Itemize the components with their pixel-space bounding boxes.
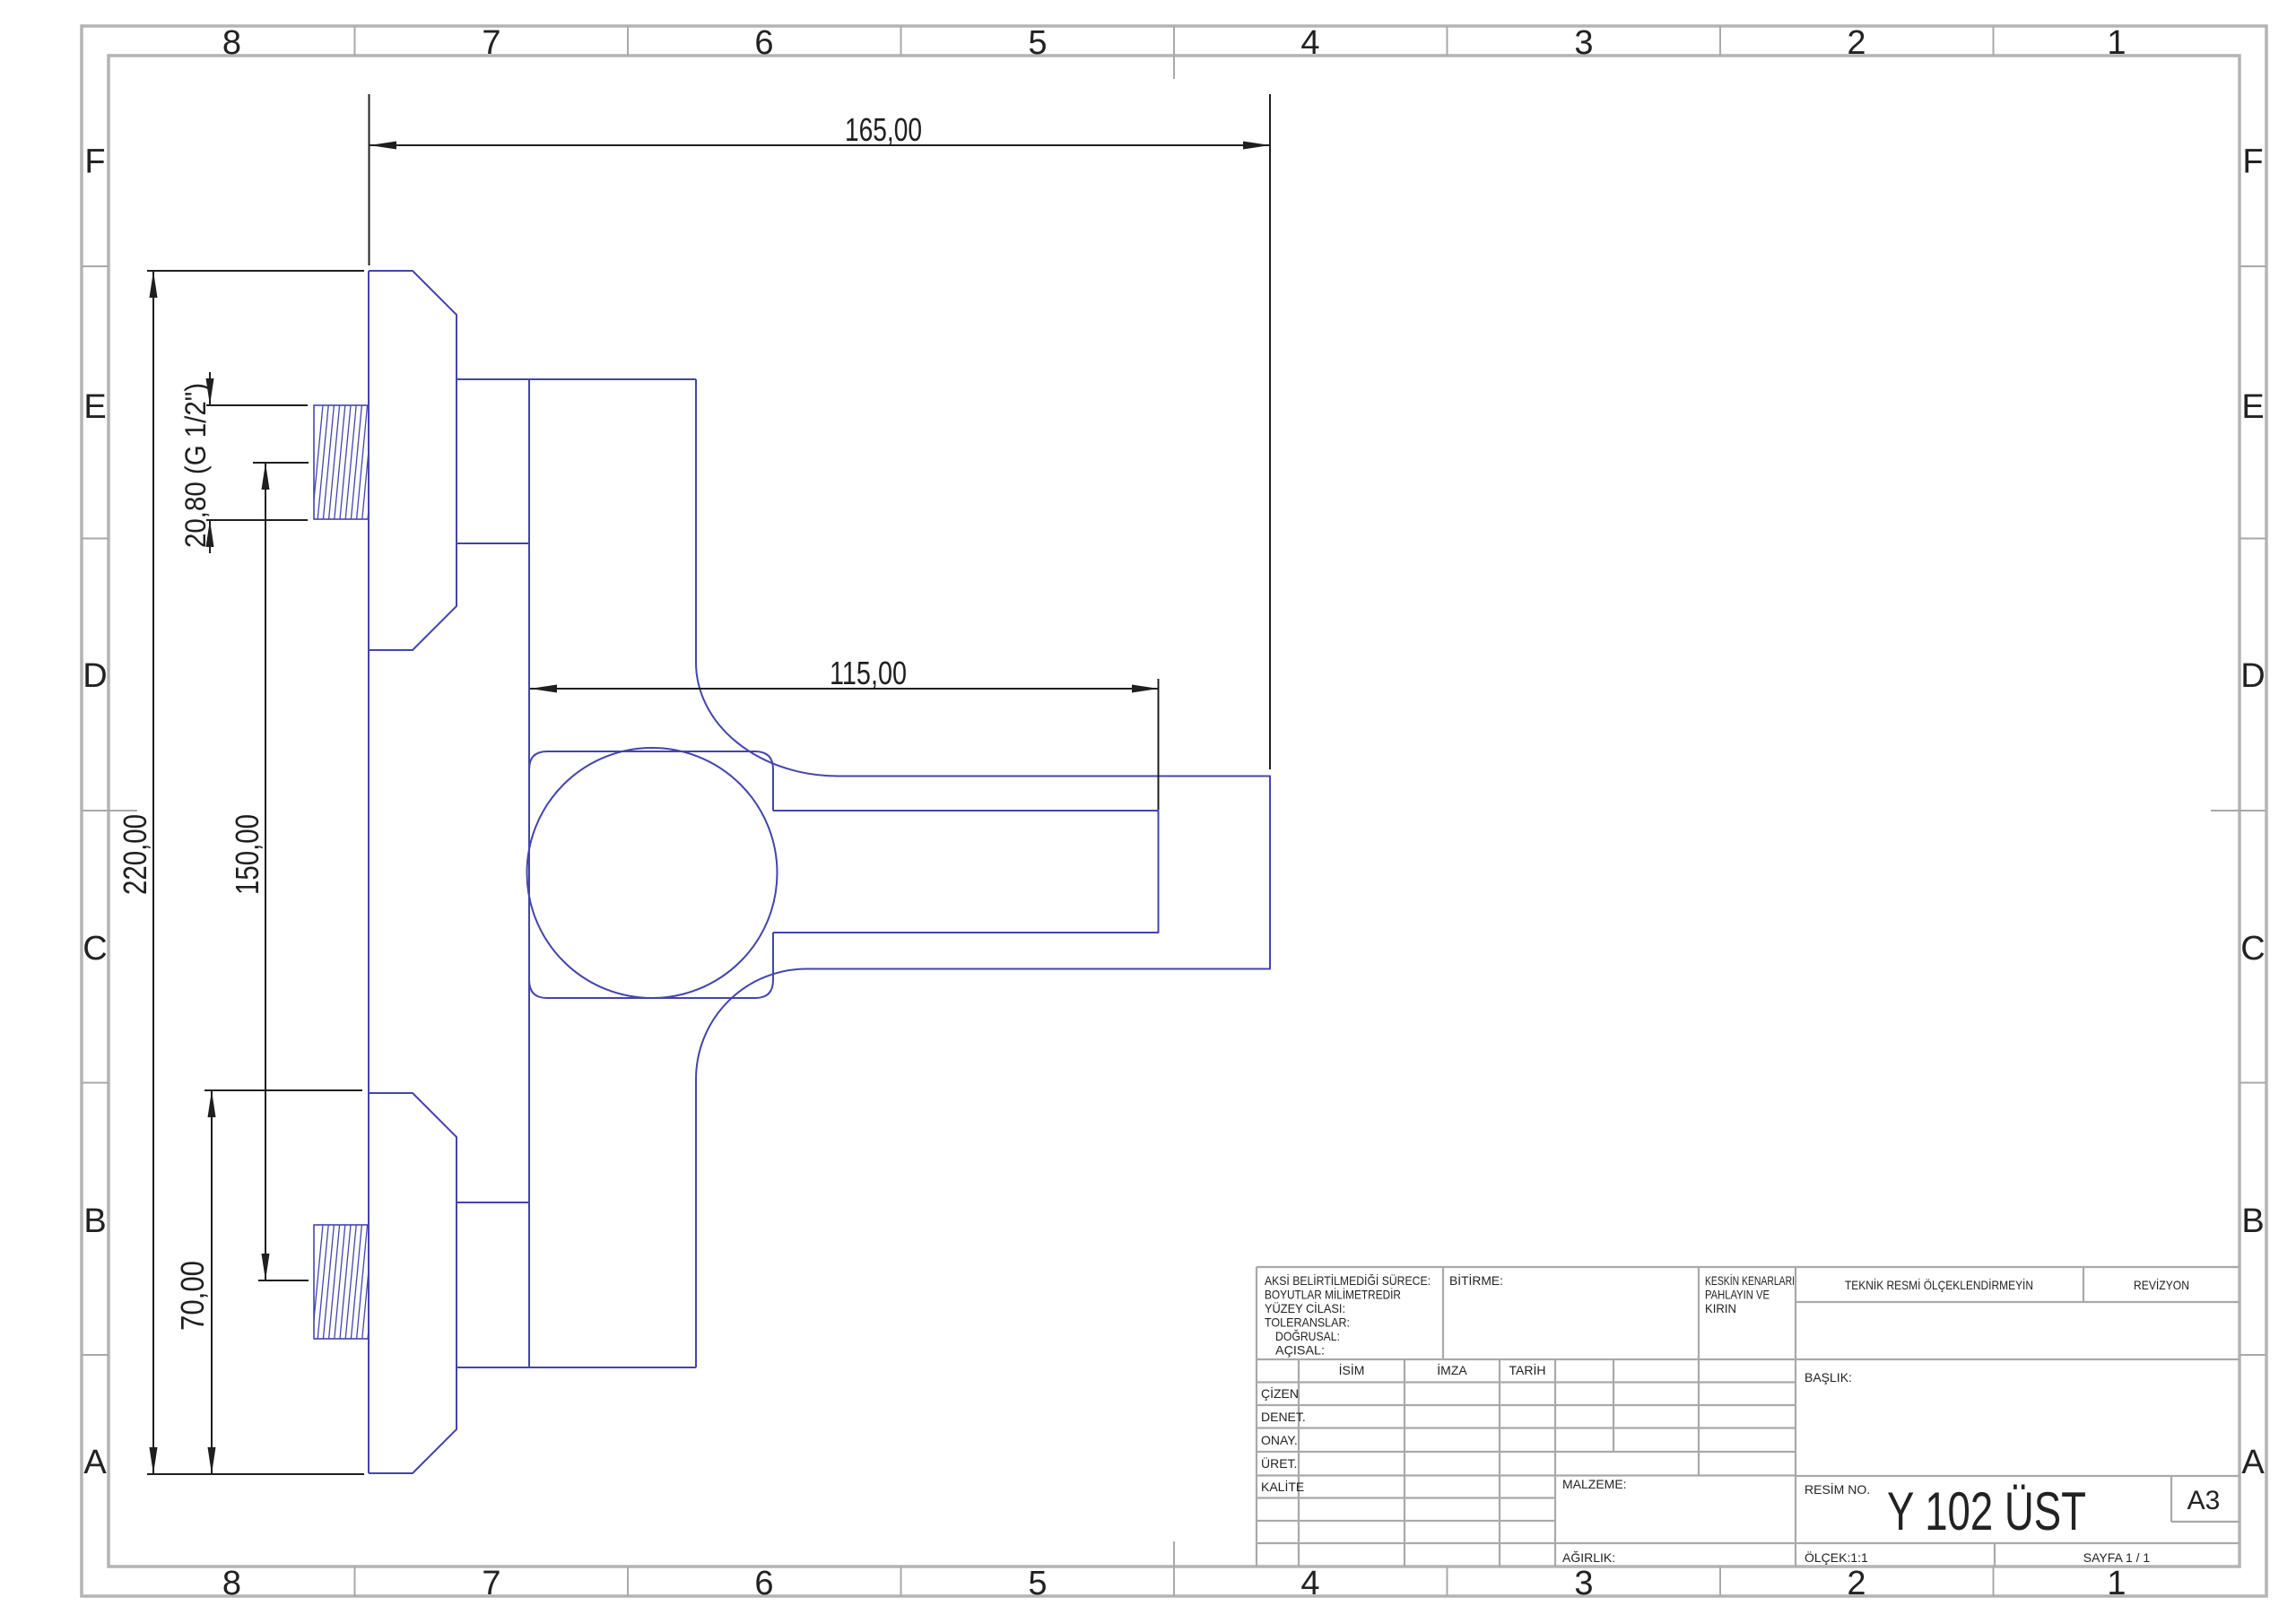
svg-text:115,00: 115,00 [830,655,907,691]
svg-text:BOYUTLAR MİLİMETREDİR: BOYUTLAR MİLİMETREDİR [1265,1287,1401,1302]
svg-text:ÖLÇEK:1:1: ÖLÇEK:1:1 [1805,1549,1868,1565]
svg-text:165,00: 165,00 [845,111,922,148]
svg-text:İSİM: İSİM [1339,1362,1365,1377]
svg-text:20,80 (G 1/2"): 20,80 (G 1/2") [179,383,212,548]
svg-text:KIRIN: KIRIN [1705,1301,1736,1315]
svg-text:TOLERANSLAR:: TOLERANSLAR: [1265,1315,1350,1330]
svg-text:AĞIRLIK:: AĞIRLIK: [1562,1550,1615,1565]
svg-text:E: E [83,388,106,426]
svg-text:SAYFA 1 / 1: SAYFA 1 / 1 [2083,1550,2151,1565]
svg-text:ÇİZEN: ÇİZEN [1261,1385,1299,1401]
svg-text:C: C [83,930,107,968]
svg-text:B: B [2241,1202,2264,1240]
svg-text:D: D [2240,657,2265,695]
svg-text:B: B [83,1202,106,1240]
svg-text:MALZEME:: MALZEME: [1562,1477,1627,1491]
svg-text:TEKNİK RESMİ ÖLÇEKLENDİRMEYİN: TEKNİK RESMİ ÖLÇEKLENDİRMEYİN [1845,1277,2033,1292]
svg-text:REVİZYON: REVİZYON [2134,1277,2189,1292]
svg-text:6: 6 [754,1565,773,1602]
svg-text:220,00: 220,00 [117,814,153,895]
svg-text:KALİTE: KALİTE [1261,1479,1304,1494]
svg-text:A3: A3 [2187,1486,2221,1515]
svg-text:F: F [2242,143,2263,181]
svg-text:A: A [83,1444,107,1481]
svg-text:ÜRET.: ÜRET. [1261,1455,1297,1471]
svg-text:KESKİN KENARLARI: KESKİN KENARLARI [1705,1272,1795,1288]
svg-text:1: 1 [2107,24,2126,62]
svg-text:RESİM NO.: RESİM NO. [1805,1481,1870,1497]
svg-text:2: 2 [1847,1565,1865,1602]
svg-text:İMZA: İMZA [1437,1362,1467,1377]
svg-text:8: 8 [222,24,241,62]
svg-text:7: 7 [482,1565,500,1602]
svg-text:YÜZEY CİLASI:: YÜZEY CİLASI: [1265,1300,1345,1315]
svg-text:1: 1 [2107,1565,2126,1602]
svg-text:2: 2 [1847,24,1865,62]
svg-text:BAŞLIK:: BAŞLIK: [1805,1370,1852,1384]
svg-text:6: 6 [754,24,773,62]
svg-text:PAHLAYIN VE: PAHLAYIN VE [1705,1288,1770,1302]
svg-text:AÇISAL:: AÇISAL: [1275,1343,1325,1358]
svg-text:TARİH: TARİH [1509,1362,1546,1377]
svg-text:D: D [83,657,107,695]
svg-text:5: 5 [1028,1565,1047,1602]
svg-text:3: 3 [1574,24,1593,62]
svg-text:5: 5 [1028,24,1047,62]
svg-text:4: 4 [1300,24,1319,62]
svg-text:A: A [2241,1444,2265,1481]
svg-text:F: F [84,143,105,181]
svg-text:70,00: 70,00 [174,1261,211,1331]
svg-text:E: E [2241,388,2264,426]
svg-text:ONAY.: ONAY. [1261,1433,1298,1447]
svg-text:7: 7 [482,24,500,62]
svg-text:4: 4 [1300,1565,1319,1602]
svg-text:AKSİ BELİRTİLMEDİĞİ SÜRECE:: AKSİ BELİRTİLMEDİĞİ SÜRECE: [1265,1272,1431,1288]
svg-text:Y 102 ÜST: Y 102 ÜST [1887,1481,2086,1541]
svg-text:8: 8 [222,1565,241,1602]
svg-text:BİTİRME:: BİTİRME: [1449,1272,1503,1288]
svg-text:DENET.: DENET. [1261,1410,1306,1424]
svg-text:150,00: 150,00 [229,814,265,895]
svg-text:C: C [2240,930,2265,968]
svg-text:DOĞRUSAL:: DOĞRUSAL: [1275,1329,1340,1343]
svg-text:3: 3 [1574,1565,1593,1602]
